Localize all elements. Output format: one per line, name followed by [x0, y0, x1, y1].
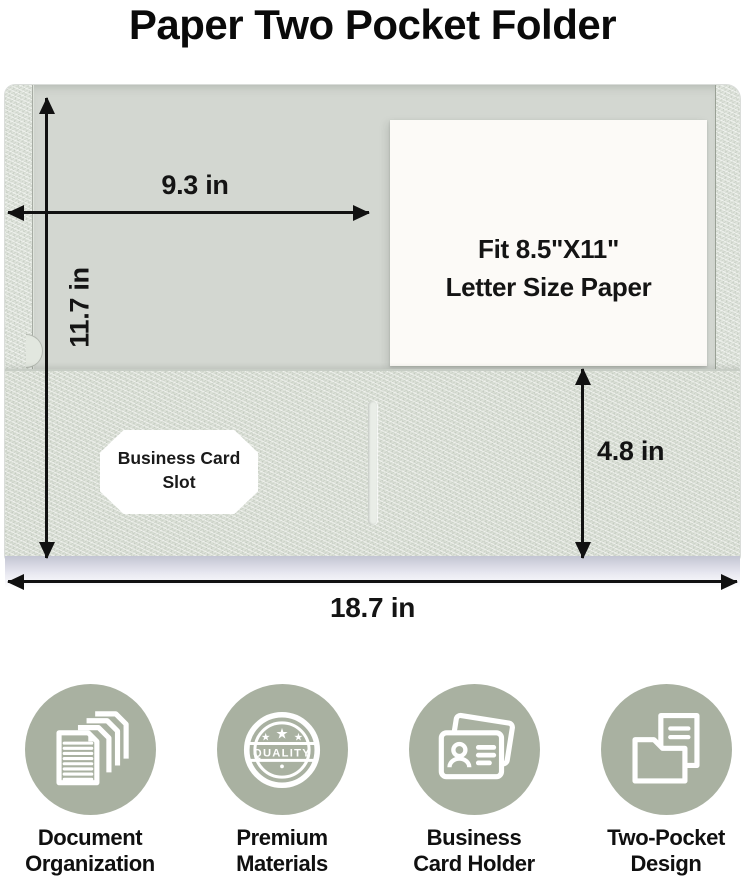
features-row: Document Organization ★ ★ ★ QUALITY	[0, 684, 745, 877]
quality-badge-icon: ★ ★ ★ QUALITY	[239, 707, 325, 793]
business-card-icon	[431, 707, 517, 793]
two-pocket-folder-icon	[623, 707, 709, 793]
card-slot-line2: Slot	[100, 470, 258, 494]
folder-bottom-fade	[5, 556, 740, 592]
feature-label-line2: Organization	[25, 851, 155, 877]
folder-icon-circle	[601, 684, 732, 815]
paper-fit-line1: Fit 8.5"X11"	[390, 230, 707, 268]
pocket-depth-dimension-label: 4.8 in	[597, 436, 664, 467]
feature-label-line2: Design	[607, 851, 725, 877]
svg-text:★: ★	[261, 732, 270, 743]
quality-badge-icon-circle: ★ ★ ★ QUALITY	[217, 684, 348, 815]
feature-two-pocket-design: Two-Pocket Design	[570, 684, 745, 877]
total-width-dimension-arrow	[8, 580, 737, 583]
height-dimension-label: 11.7 in	[65, 247, 96, 369]
page-title: Paper Two Pocket Folder	[0, 0, 745, 50]
feature-label-line1: Premium	[236, 825, 328, 851]
business-card-icon-circle	[409, 684, 540, 815]
feature-label-line1: Business	[413, 825, 535, 851]
stacked-documents-icon	[47, 707, 133, 793]
svg-text:★: ★	[275, 726, 288, 742]
width-dimension-label: 9.3 in	[105, 170, 285, 201]
letter-paper: Fit 8.5"X11" Letter Size Paper	[390, 120, 707, 366]
feature-label: Two-Pocket Design	[607, 825, 725, 877]
feature-label: Document Organization	[25, 825, 155, 877]
feature-label: Premium Materials	[236, 825, 328, 877]
documents-icon	[25, 684, 156, 815]
feature-business-card-holder: Business Card Holder	[378, 684, 570, 877]
feature-premium-materials: ★ ★ ★ QUALITY Premium Materials	[186, 684, 378, 877]
total-width-dimension-label: 18.7 in	[0, 592, 745, 624]
card-slot-line1: Business Card	[100, 446, 258, 470]
feature-label: Business Card Holder	[413, 825, 535, 877]
feature-document-organization: Document Organization	[0, 684, 186, 877]
product-infographic: Paper Two Pocket Folder Fit 8.5"X11" Let…	[0, 0, 745, 879]
feature-label-line2: Card Holder	[413, 851, 535, 877]
pocket-depth-dimension-arrow	[581, 369, 584, 558]
width-dimension-arrow	[8, 211, 369, 214]
feature-label-line1: Document	[25, 825, 155, 851]
business-card-slot-label: Business Card Slot	[100, 430, 258, 514]
paper-fit-line2: Letter Size Paper	[390, 268, 707, 306]
feature-label-line2: Materials	[236, 851, 328, 877]
svg-text:★: ★	[294, 732, 303, 743]
height-dimension-arrow	[45, 98, 48, 558]
feature-label-line1: Two-Pocket	[607, 825, 725, 851]
pocket-slit	[368, 401, 377, 525]
quality-badge-text: QUALITY	[253, 747, 311, 759]
folder-illustration: Fit 8.5"X11" Letter Size Paper Business …	[5, 85, 740, 560]
